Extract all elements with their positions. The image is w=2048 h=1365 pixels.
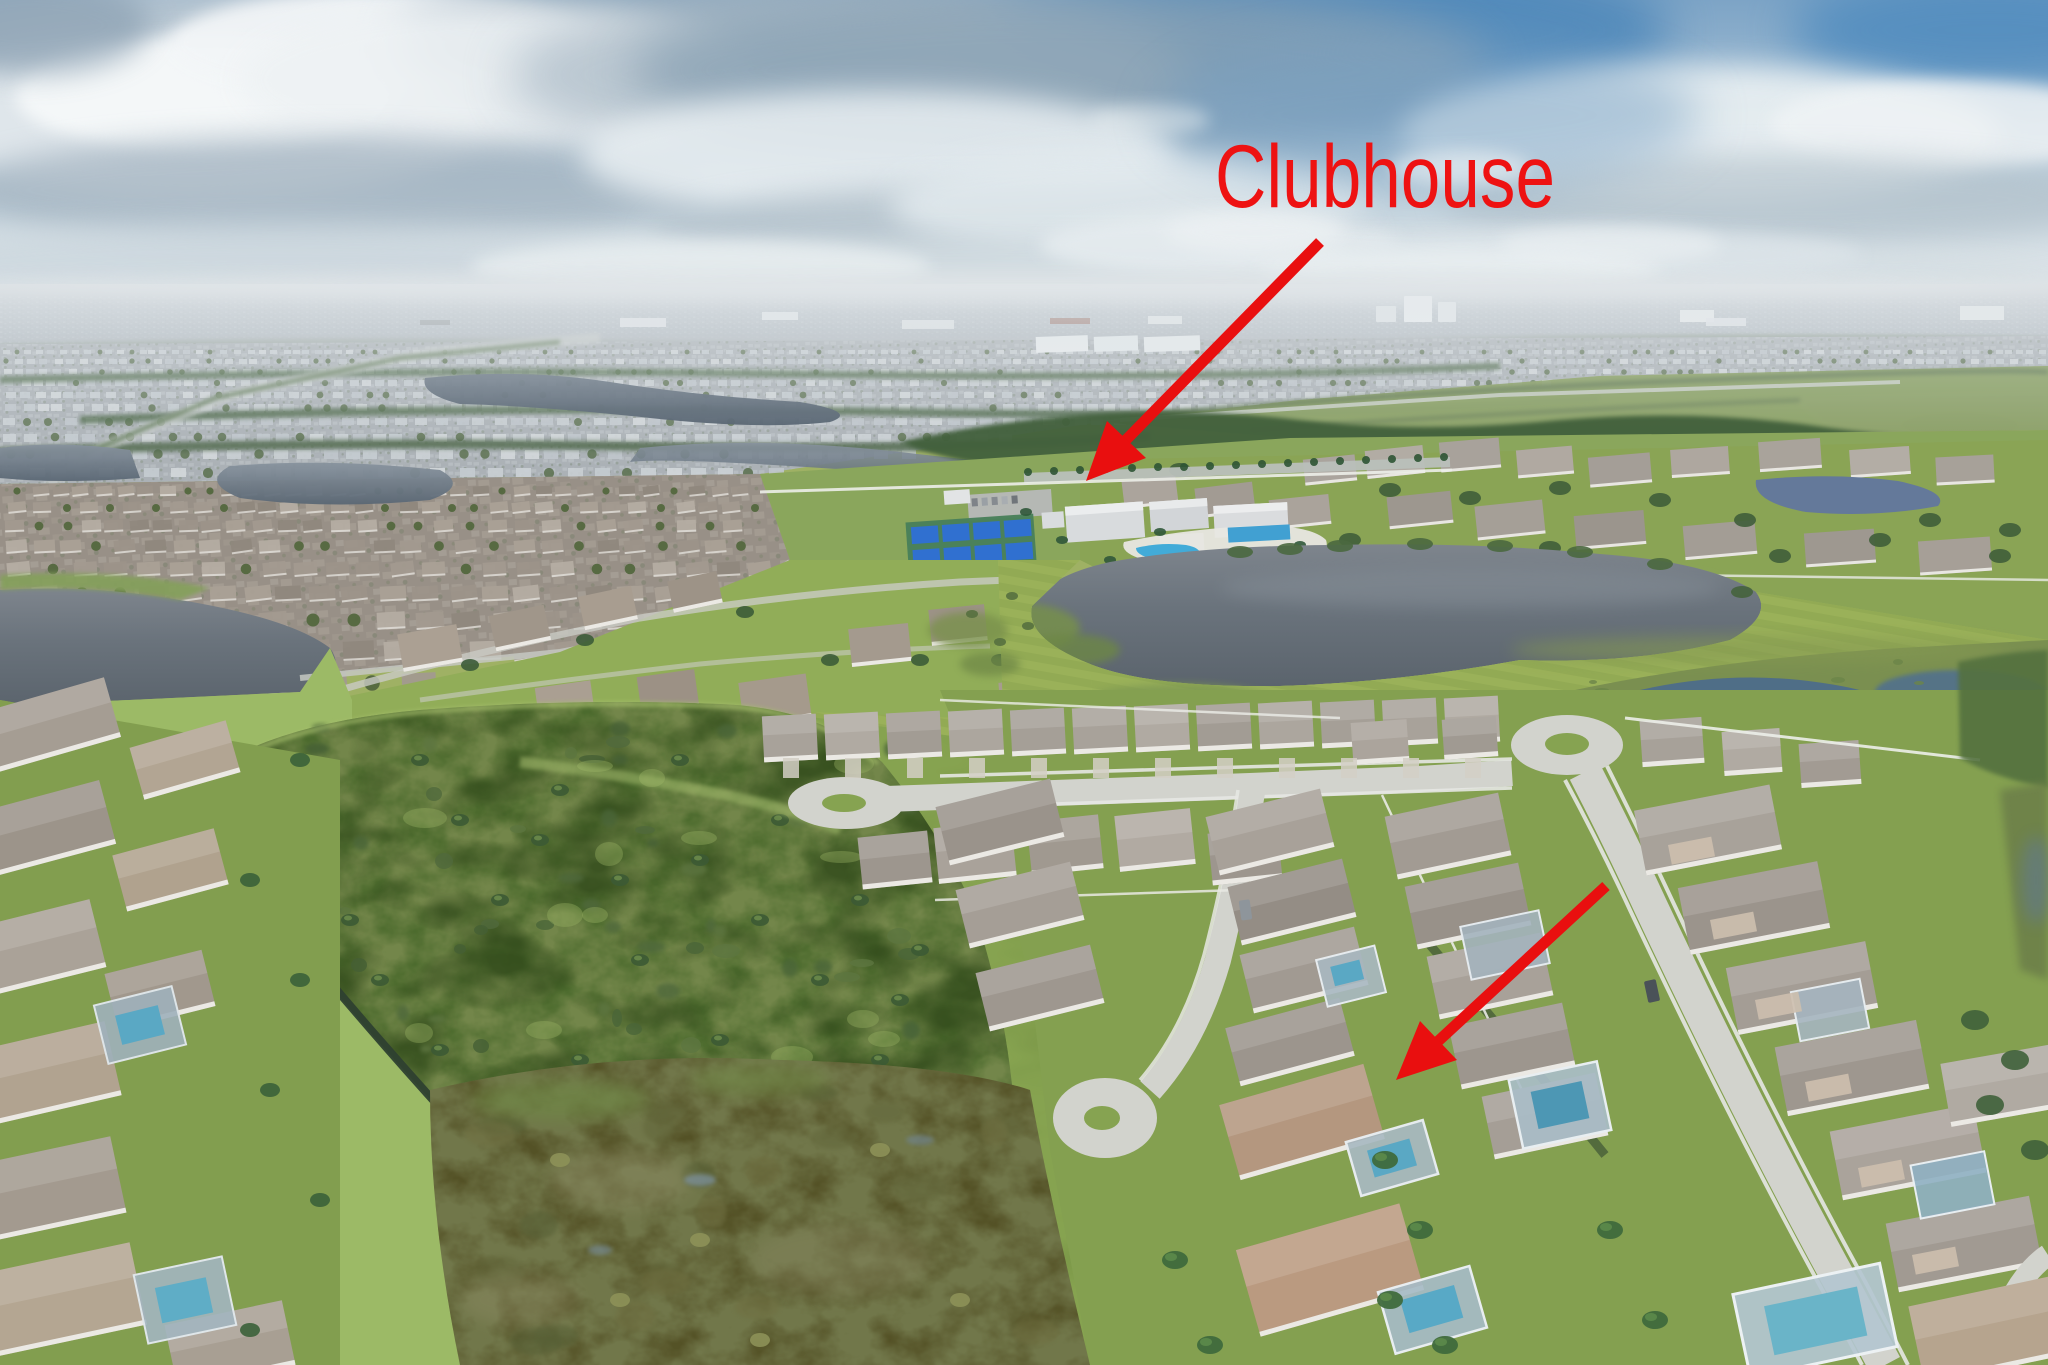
- svg-text:Clubhouse: Clubhouse: [1215, 126, 1555, 226]
